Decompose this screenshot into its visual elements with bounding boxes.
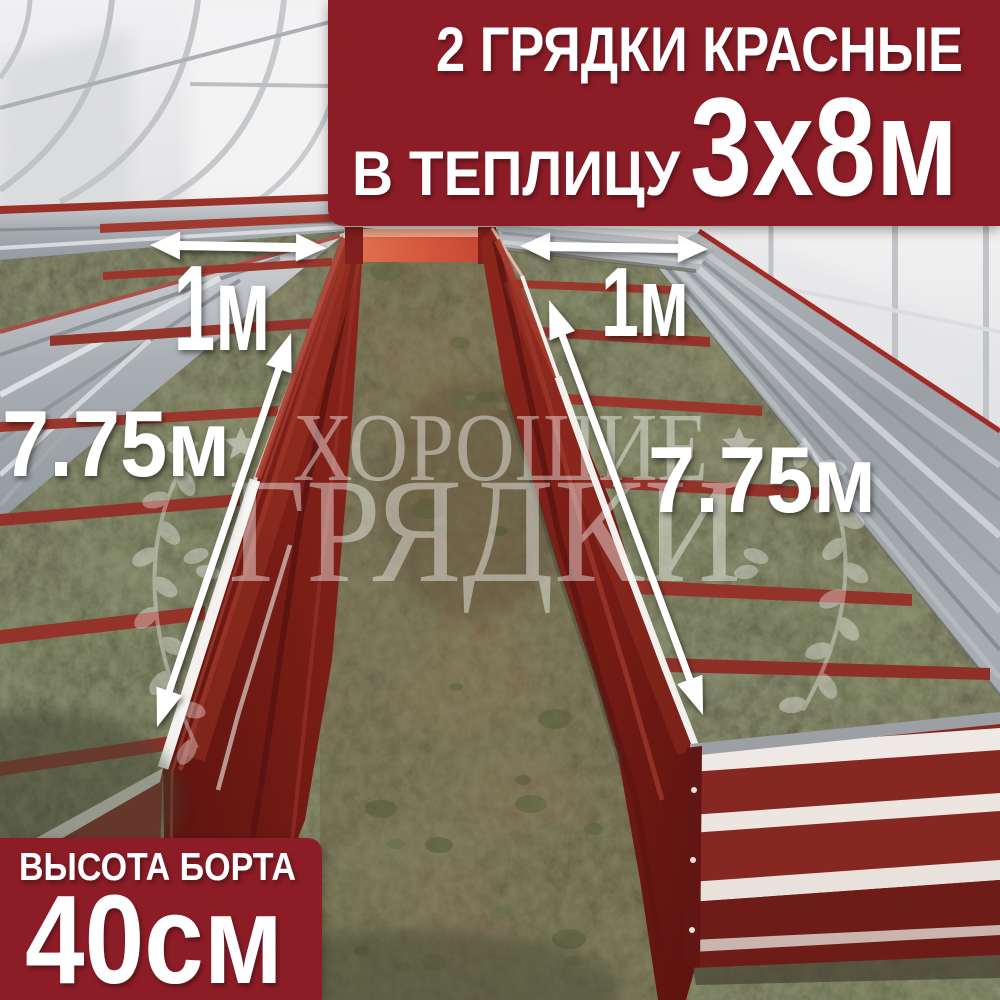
svg-text:3х8м: 3х8м	[690, 68, 958, 225]
svg-text:В ТЕПЛИЦУ: В ТЕПЛИЦУ	[352, 139, 681, 209]
svg-text:7.75м: 7.75м	[648, 427, 876, 532]
svg-text:1м: 1м	[174, 240, 271, 376]
svg-text:1м: 1м	[601, 247, 689, 357]
svg-text:40см: 40см	[25, 869, 283, 1000]
svg-text:7.75м: 7.75м	[2, 391, 230, 496]
